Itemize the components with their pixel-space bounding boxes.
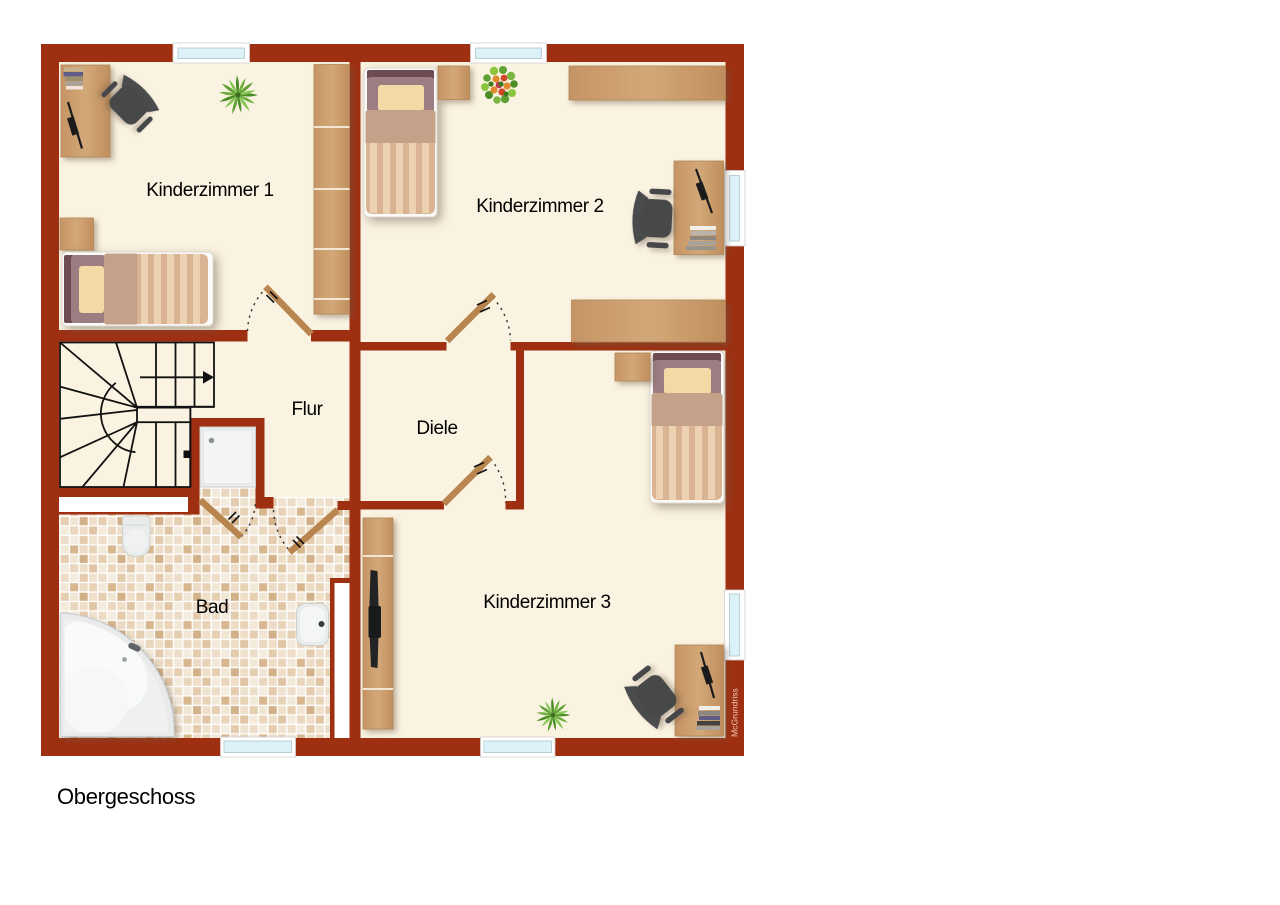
svg-text:Flur: Flur [291, 399, 323, 420]
svg-text:Kinderzimmer 1: Kinderzimmer 1 [146, 180, 273, 201]
svg-text:Kinderzimmer 3: Kinderzimmer 3 [483, 592, 610, 613]
svg-text:Bad: Bad [196, 597, 229, 618]
svg-text:McGrundriss: McGrundriss [730, 688, 740, 737]
svg-text:Diele: Diele [416, 418, 457, 439]
svg-text:Kinderzimmer 2: Kinderzimmer 2 [476, 196, 603, 217]
svg-text:Obergeschoss: Obergeschoss [57, 784, 196, 809]
